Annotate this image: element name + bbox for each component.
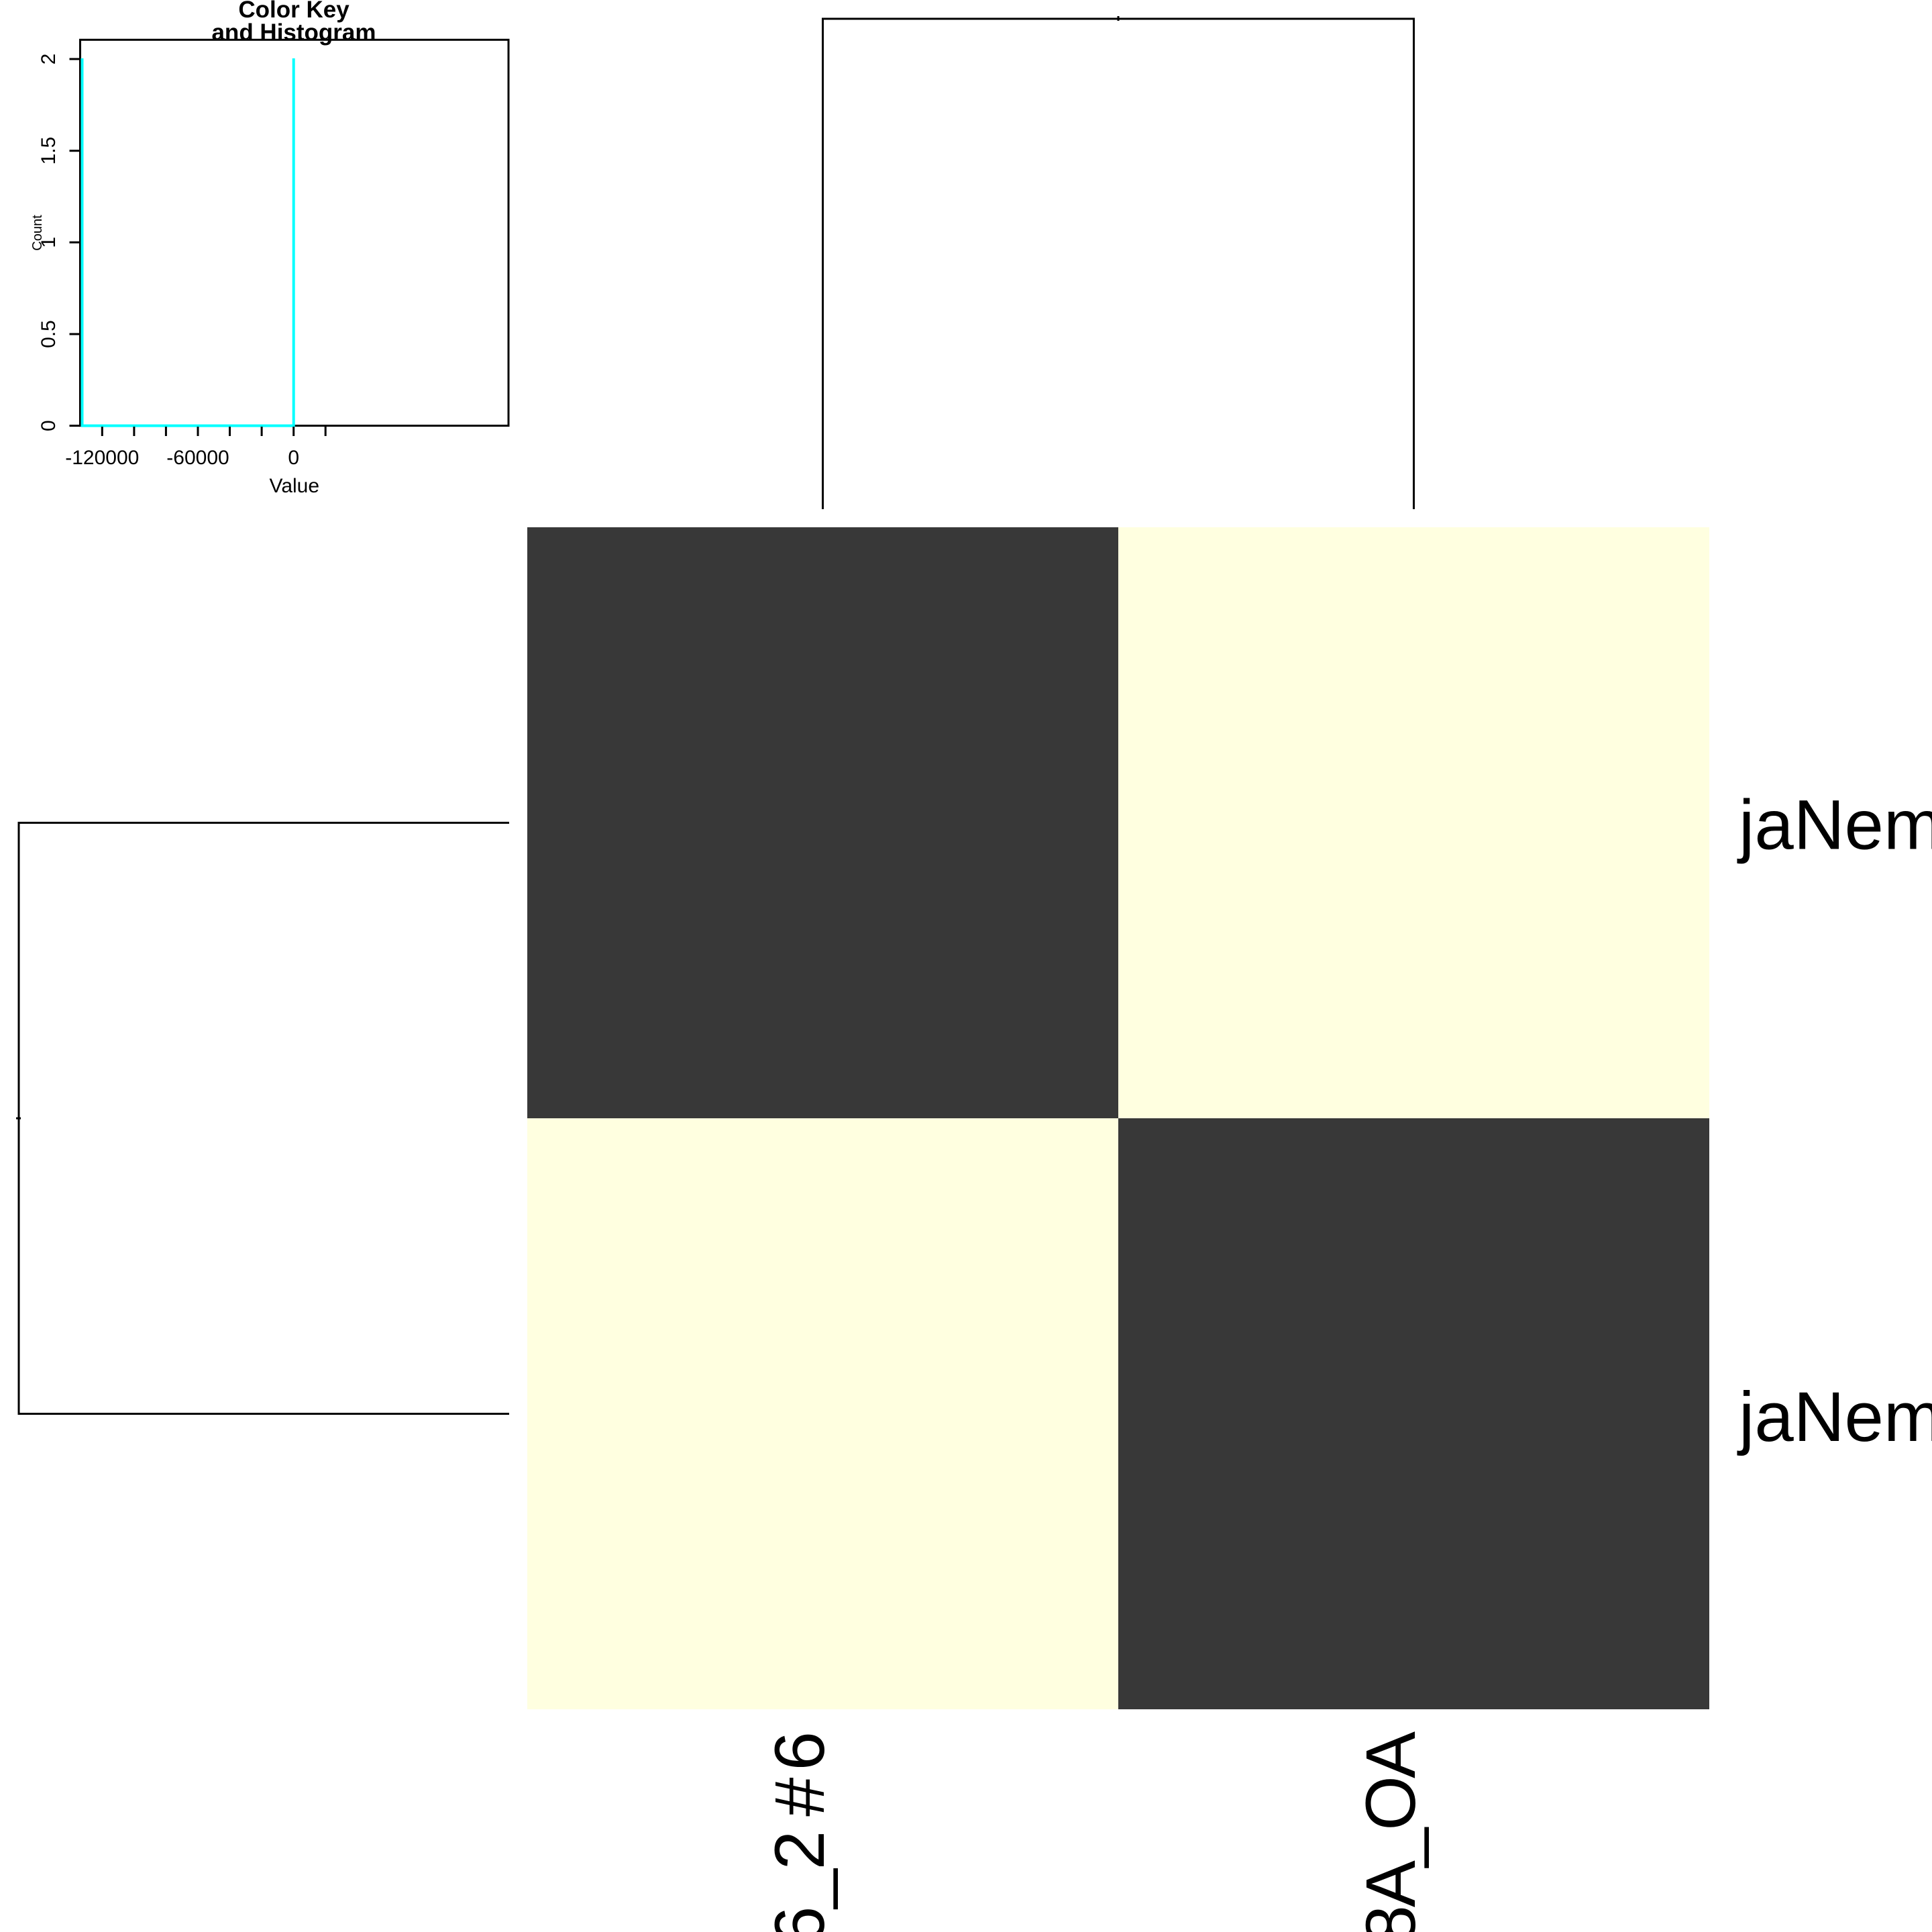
svg-text:-120000: -120000	[65, 447, 139, 469]
svg-text:jaNemVe16_2#6: jaNemVe16_2#6	[1737, 786, 1932, 865]
svg-text:0: 0	[38, 420, 60, 431]
svg-text:jaNemVe18A_OA: jaNemVe18A_OA	[1352, 1727, 1430, 1932]
svg-text:and Histogram: and Histogram	[211, 19, 376, 46]
svg-text:Count: Count	[30, 215, 45, 251]
svg-text:Value: Value	[270, 475, 320, 497]
svg-text:2: 2	[38, 54, 60, 65]
svg-text:jaNemVe18A_OA: jaNemVe18A_OA	[1737, 1378, 1932, 1456]
svg-text:-60000: -60000	[166, 447, 229, 469]
svg-text:1.5: 1.5	[38, 137, 60, 165]
svg-text:jaNemVe16_2#6: jaNemVe16_2#6	[761, 1727, 839, 1932]
svg-text:0: 0	[288, 447, 299, 469]
svg-text:0.5: 0.5	[38, 320, 60, 348]
